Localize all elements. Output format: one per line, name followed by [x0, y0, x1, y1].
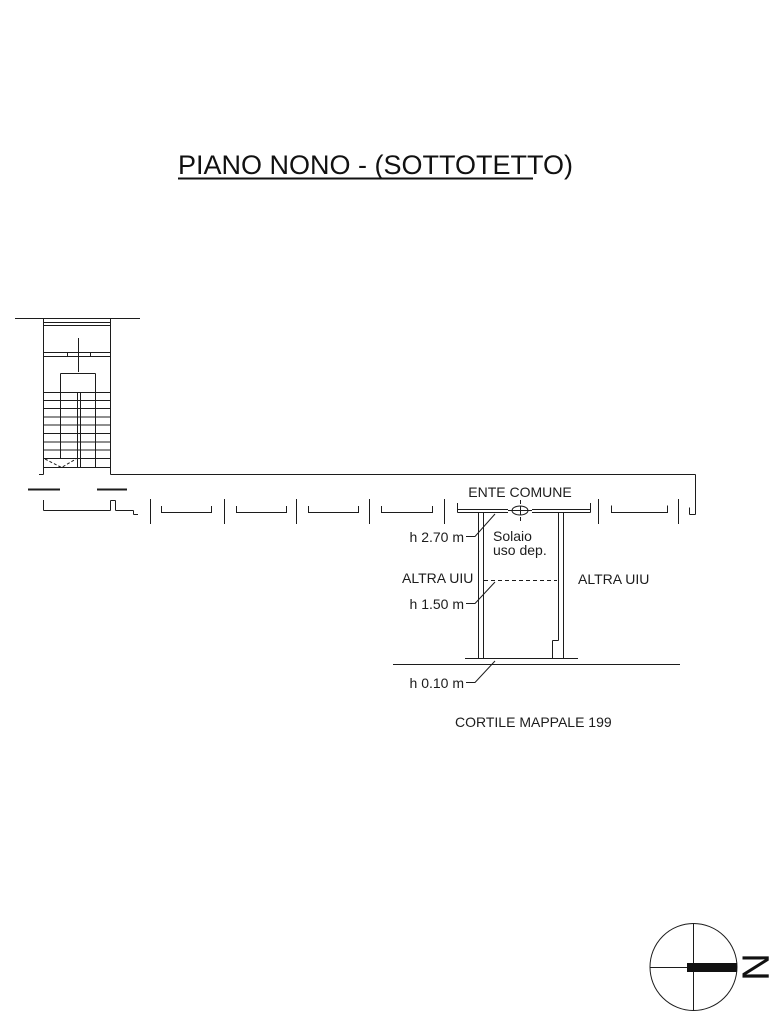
stair-central-divider — [78, 393, 81, 468]
height-leader-lines — [466, 514, 495, 683]
label-ente-comune: ENTE COMUNE — [468, 484, 571, 500]
label-height-150: h 1.50 m — [410, 596, 464, 612]
room-left-wall — [479, 513, 484, 659]
stair-direction-chevron — [45, 459, 76, 468]
label-cortile-mappale: CORTILE MAPPALE 199 — [455, 714, 612, 730]
compass-north-letter: N — [734, 953, 776, 980]
cadastral-plan-sheet: PIANO NONO - (SOTTOTETTO) — [0, 0, 776, 1027]
survey-point-axis — [508, 500, 532, 521]
leader-h270 — [466, 514, 495, 537]
north-compass — [650, 923, 737, 1011]
label-solaio-line2: uso dep. — [493, 542, 547, 558]
stairwell-upper-double-line — [44, 323, 111, 326]
label-height-010: h 0.10 m — [410, 675, 464, 691]
staircase — [15, 319, 140, 490]
room-right-wall — [553, 513, 564, 659]
facade-left-segment — [44, 500, 139, 515]
label-height-270: h 2.70 m — [410, 529, 464, 545]
survey-point-icon — [508, 500, 532, 521]
stair-mid-landing-line — [44, 353, 111, 357]
corridor-boundary — [111, 475, 696, 515]
corridor-right-return — [690, 475, 696, 515]
north-arrow-bar — [687, 963, 737, 972]
deposito-room — [458, 503, 591, 659]
label-altra-uiu-right: ALTRA UIU — [578, 571, 649, 587]
plan-labels: ENTE COMUNE Solaio uso dep. h 2.70 m ALT… — [402, 484, 649, 730]
floor-plan-drawing: PIANO NONO - (SOTTOTETTO) — [0, 0, 776, 1027]
label-altra-uiu-left: ALTRA UIU — [402, 570, 473, 586]
facade-pier-ticks — [151, 499, 679, 524]
page-title: PIANO NONO - (SOTTOTETTO) — [178, 150, 573, 180]
facade-window-brackets — [162, 506, 668, 513]
facade-wall-openings — [44, 499, 679, 524]
